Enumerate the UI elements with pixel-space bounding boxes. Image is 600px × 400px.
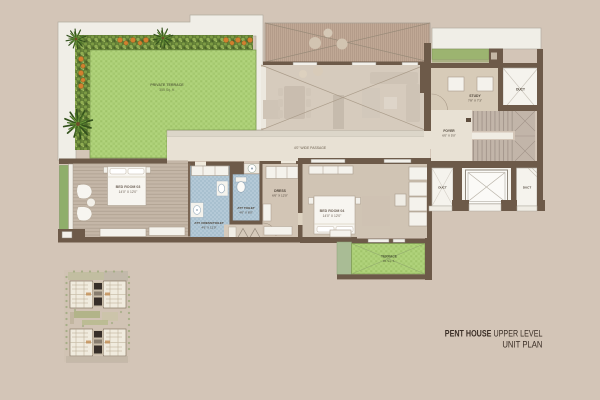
svg-text:BED ROOM 04: BED ROOM 04 [320,209,345,213]
svg-text:TERRACE: TERRACE [381,255,398,259]
svg-text:6'6" X 12'0": 6'6" X 12'0" [272,194,288,198]
svg-text:4'6" X 12'0": 4'6" X 12'0" [201,226,216,230]
svg-text:FOYER: FOYER [443,129,455,133]
svg-text:PENT HOUSE UPPER LEVEL: PENT HOUSE UPPER LEVEL [445,329,543,339]
svg-text:ATT. DRESS/TOILET: ATT. DRESS/TOILET [194,221,224,225]
svg-text:14'0" X 12'0": 14'0" X 12'0" [119,190,138,194]
svg-text:6'0" X 5'0": 6'0" X 5'0" [442,134,456,138]
svg-text:DRESS: DRESS [274,189,286,193]
svg-text:14'0" X 12'0": 14'0" X 12'0" [323,214,342,218]
svg-text:96 Sq. ft.: 96 Sq. ft. [383,259,396,263]
svg-text:355 Sq. ft.: 355 Sq. ft. [159,88,175,92]
svg-text:DUCT: DUCT [523,186,531,190]
svg-text:4'6" X 8'0": 4'6" X 8'0" [239,211,253,215]
svg-text:BED ROOM 03: BED ROOM 03 [116,185,141,189]
svg-text:UNIT PLAN: UNIT PLAN [502,339,542,350]
svg-text:PRIVATE TERRACE: PRIVATE TERRACE [150,83,184,87]
svg-text:4'0" WIDE PASSAGE: 4'0" WIDE PASSAGE [294,146,327,150]
svg-text:7'8" X 7'3": 7'8" X 7'3" [468,99,482,103]
svg-text:DUCT: DUCT [438,186,446,190]
svg-text:DUCT: DUCT [516,88,525,92]
svg-text:ATT TOILET: ATT TOILET [237,206,255,210]
svg-text:STUDY: STUDY [469,94,481,98]
